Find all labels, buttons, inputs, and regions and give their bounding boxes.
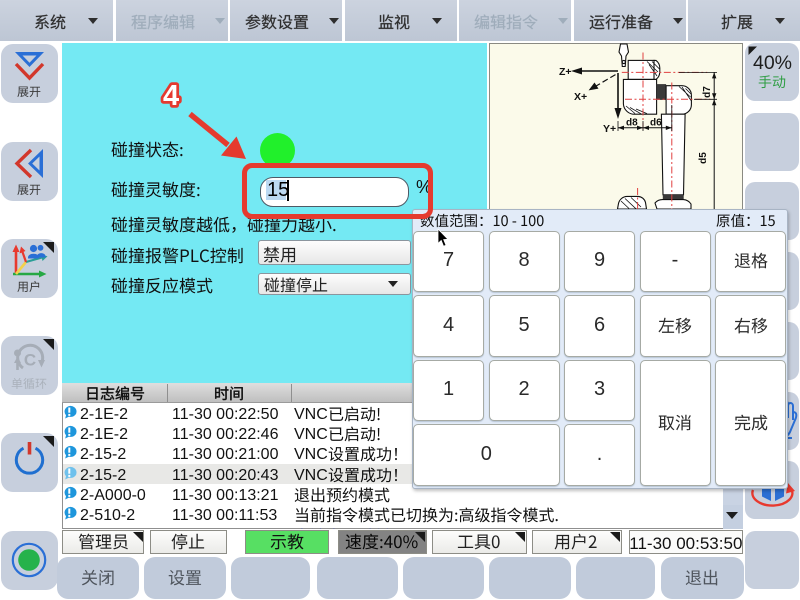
svg-text:d5: d5	[698, 152, 709, 164]
svg-text:d8: d8	[626, 118, 638, 129]
svg-text:Z+: Z+	[559, 66, 572, 78]
svg-text:d6: d6	[650, 118, 662, 129]
svg-text:4: 4	[163, 80, 179, 112]
svg-text:X+: X+	[574, 91, 587, 103]
svg-text:Y+: Y+	[603, 123, 616, 135]
svg-text:C: C	[24, 351, 36, 370]
svg-text:d7: d7	[702, 86, 713, 98]
